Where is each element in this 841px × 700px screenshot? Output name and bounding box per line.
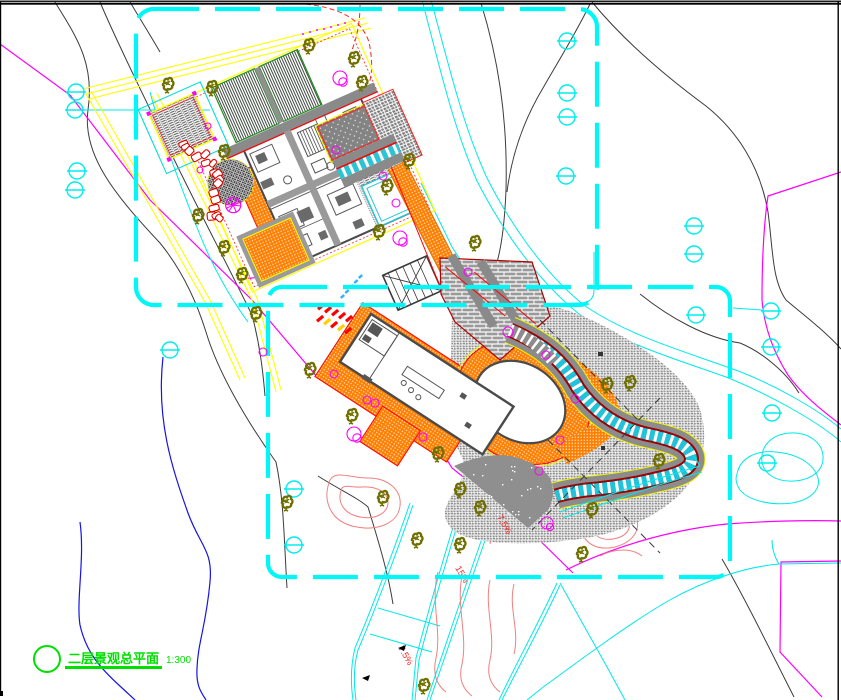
svg-text:1:300: 1:300 xyxy=(166,655,191,666)
svg-text:二层景观总平面: 二层景观总平面 xyxy=(68,651,159,666)
